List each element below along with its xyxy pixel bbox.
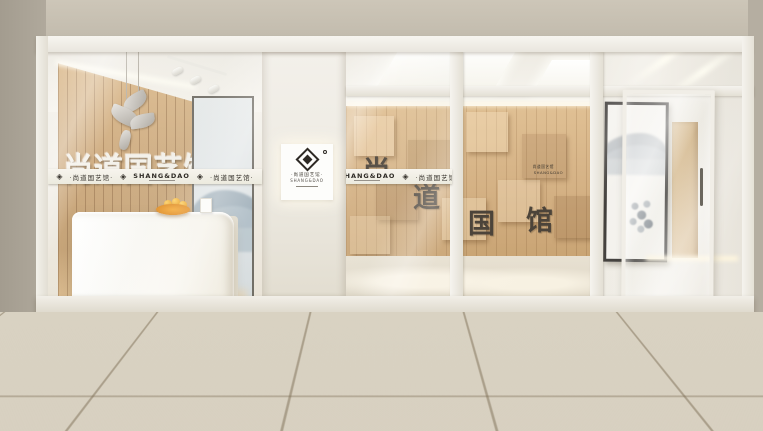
storefront-frame-right [742,36,754,312]
logo-registered-dot [323,150,327,154]
wall-character-guan: 馆 [526,199,553,238]
wall-character-guo: 国 [468,202,495,241]
banner-en-label: SHANG&DAO [133,173,190,181]
diamond-icon: ◈ [402,172,408,181]
banner-cn-label: ·尚道国艺馆· [416,172,452,182]
mullion-reflection [592,312,598,431]
wood-panel [466,112,508,152]
diamond-icon: ◈ [197,172,203,181]
registered-mark: ® [754,379,762,388]
door-handle[interactable] [700,168,703,206]
banner-en-subline [149,180,175,181]
storefront-frame-top [36,36,752,52]
floor-light-reflection [250,312,490,431]
watermark-name-cn: 名杰装饰 [662,378,754,410]
banner-en-subline [354,180,380,181]
wall-small-text-en: SHANG&DAO [534,170,563,175]
mingjie-logo-icon: ★ [608,375,656,423]
wall-small-text-cn: 尚道国艺馆 [533,164,554,169]
lightbox-subline [296,186,318,187]
floor-character-reflection: 尚道国艺馆 [100,364,160,431]
banner-cn-label: ·尚道国艺馆· [70,172,114,182]
brand-banner-tape-right: SHANG&DAO ◈ ·尚道国艺馆· [346,169,452,184]
watermark-name-en: MINGJIEZHUANGSHI [662,411,763,420]
storefront-render: 尚道国艺馆 [0,0,763,431]
lightbox-name-cn: ·尚道国艺馆· [284,171,331,177]
watermark-text: 名杰装饰 ® MINGJIEZHUANGSHI [662,378,763,420]
banner-cn-label: ·尚道国艺馆· [210,172,254,182]
door-jamb-mullion [590,52,603,298]
lightbox-name-en: SHANG&DAO [286,179,328,184]
wood-panel [554,196,594,238]
company-watermark: ★ 名杰装饰 ® MINGJIEZHUANGSHI [608,370,760,428]
diamond-icon: ◈ [56,172,62,181]
banner-en-text: SHANG&DAO [133,172,190,180]
diamond-icon: ◈ [120,172,126,181]
lightbox-sign: ·尚道国艺馆· SHANG&DAO [281,144,333,200]
banner-en-label: SHANG&DAO [346,173,395,181]
mullion-reflection [86,312,91,431]
brand-banner-tape-left: ◈ ·尚道国艺馆· ◈ SHANG&DAO ◈ ·尚道国艺馆· [48,169,262,184]
brand-diamond-logo-icon [295,147,319,171]
storefront-frame-left [36,36,48,312]
banner-en-text: SHANG&DAO [346,172,395,180]
